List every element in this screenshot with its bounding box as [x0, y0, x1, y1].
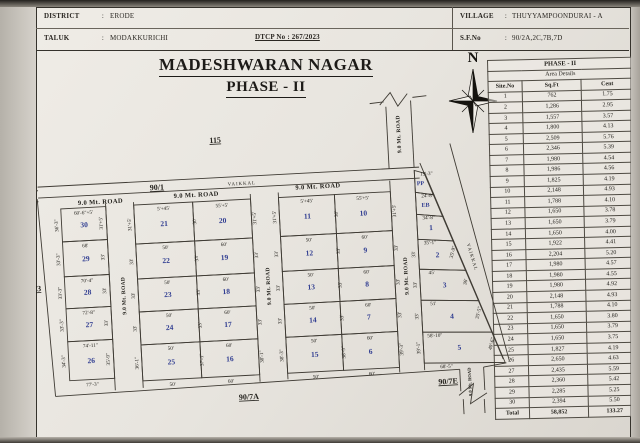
plot-4-number: 4 — [450, 311, 454, 320]
north-road-label: 9.0 Mt. ROAD — [395, 115, 403, 153]
plot-4-left-dim: 33' — [414, 313, 420, 319]
plot-10-right-dim: 31'+5' — [391, 204, 398, 217]
plot-16-top-dim: 60' — [226, 343, 232, 349]
plot-23-top-dim: 50' — [164, 280, 170, 286]
survey-tick — [26, 191, 39, 203]
plot-11-top-dim: 5'+45' — [300, 198, 313, 205]
header: DISTRICT : ERODE TALUK : MODAKKURICHI DT… — [36, 7, 629, 51]
plot-29-left-dim: 33'-3" — [56, 253, 63, 266]
sfno-value: 90/2A,2C,7B,7D — [512, 34, 562, 42]
south-road-line — [460, 369, 461, 391]
plot-EB-number: EB — [421, 203, 429, 209]
village-label: VILLAGE — [460, 12, 500, 20]
north-road-line — [386, 107, 389, 169]
plot-10-top-dim: 55'+5' — [356, 195, 369, 202]
parcel-90-7a-label: 90/7A — [239, 392, 260, 402]
plot-21-left-dim: 31'+5' — [127, 218, 134, 231]
plot-16-number: 16 — [226, 354, 234, 363]
plot-18-right-dim: 33' — [256, 286, 262, 292]
plot-5-number: 5 — [457, 343, 461, 352]
plot-26-bottom-dim: 77'-3" — [86, 382, 99, 389]
layout-title: MADESHWARAN NAGAR PHASE - II — [146, 55, 386, 98]
plot-18-number: 18 — [222, 287, 230, 296]
plot-27-left-dim: 33'-3" — [59, 319, 66, 332]
survey-tick — [25, 180, 38, 192]
parcel-115-label: 115 — [209, 135, 221, 145]
plot-8-right-dim: 33' — [395, 279, 401, 285]
west-boundary-line — [37, 199, 55, 397]
plot-6-bottom-dim: 60' — [369, 371, 375, 377]
plot-2-number: 2 — [435, 250, 439, 259]
plot-30-left-dim: 36'-3" — [54, 219, 61, 232]
plot-19-top-dim: 60' — [221, 242, 227, 248]
plot-29-right-dim: 33' — [100, 254, 106, 260]
plot-16-bottom-dim: 60' — [228, 379, 234, 385]
road-break-icon — [458, 383, 487, 404]
colon: : — [96, 12, 110, 20]
plot-5-right-dim: 40'-6" — [488, 337, 497, 351]
plot-20-right-dim: 31'+5' — [252, 212, 259, 225]
divider-dim: 33' — [339, 315, 345, 321]
plot-14-top-dim: 50' — [309, 305, 315, 311]
village-row: VILLAGE : THUYYAMPOONDURAI - A — [460, 12, 603, 20]
plot-30-right-dim: 31'+5' — [98, 217, 105, 230]
plot-5-bottom-dim: 68'-5" — [440, 364, 453, 371]
plot-3-top-dim: 45' — [428, 270, 434, 276]
plot-24-top-dim: 50' — [166, 313, 172, 319]
village-value: THUYYAMPOONDURAI - A — [512, 12, 603, 20]
colon: : — [500, 12, 512, 20]
plot-7-top-dim: 60' — [365, 302, 371, 308]
parcel-90-3-label: 90/3 — [27, 284, 42, 294]
south-road-line — [463, 399, 464, 414]
plot-25-top-dim: 50' — [168, 346, 174, 352]
plot-10-number: 10 — [359, 208, 367, 217]
header-divider-horizontal — [36, 28, 629, 29]
plot-15-number: 15 — [311, 350, 319, 359]
col-site-no: Site.No — [488, 81, 522, 92]
plot-2-right-dim: 35'-9" — [449, 245, 458, 259]
plot-11-left-dim: 31'+5' — [272, 211, 279, 224]
plot-29-number: 29 — [82, 254, 90, 263]
sfno-row: S.F.No : 90/2A,2C,7B,7D — [460, 34, 562, 42]
plot-22-top-dim: 50' — [162, 245, 168, 251]
plot-11-number: 11 — [304, 211, 312, 220]
plot-9-right-dim: 33' — [394, 245, 400, 251]
parcel-90-7e-label: 90/7E — [438, 376, 458, 386]
divider-dim: 33' — [337, 282, 343, 288]
plot-EB-top-dim: 24'-8" — [421, 193, 434, 200]
main-road-label: 9.0 Mt. ROAD — [78, 198, 124, 207]
south-road-line — [484, 367, 485, 390]
plot-13-top-dim: 50' — [307, 272, 313, 278]
plot-PP-number: PP — [417, 181, 425, 187]
plot-25-bottom-dim: 50' — [169, 382, 175, 388]
vaikkal-label-diagonal: VAIKKAL — [465, 243, 478, 271]
divider-dim: 30' — [192, 218, 198, 224]
divider-dim: 33' — [336, 248, 342, 254]
plot-30-top-dim: 60'-6"+5' — [74, 210, 93, 217]
plot-3-left-dim: 33' — [413, 282, 419, 288]
plot-25-left-dim: 36'-1" — [134, 357, 141, 370]
plot-22-left-dim: 33' — [129, 258, 135, 264]
plot-4-right-dim: 35'-5" — [475, 306, 484, 320]
plot-15-left-dim: 38'-3" — [279, 349, 286, 362]
divider-dim: 38'-9" — [341, 346, 348, 359]
main-road-label: 9.0 Mt. ROAD — [173, 191, 219, 200]
plot-8-top-dim: 60' — [363, 269, 369, 275]
divider-dim: 30' — [334, 211, 340, 217]
plot-23-left-dim: 33' — [131, 292, 137, 298]
plot-5-left-dim: 39'-1" — [416, 341, 423, 354]
parcel-90-1-label: 90/1 — [150, 183, 165, 193]
district-label: DISTRICT — [44, 12, 96, 20]
south-boundary-line — [483, 363, 506, 367]
taluk-row: TALUK : MODAKKURICHI — [44, 34, 168, 42]
divider-dim: 33' — [196, 289, 202, 295]
total-cent: 133.27 — [589, 405, 640, 417]
site-plan: 115 90/1 VAIKKAL 9.0 Mt. ROAD 9.0 Mt. RO… — [0, 95, 520, 443]
plot-19-right-dim: 33' — [254, 252, 260, 258]
plot-15-bottom-dim: 50' — [313, 374, 319, 380]
total-sqft: 58,852 — [529, 406, 589, 418]
plot-26-left-dim: 34'-3" — [61, 355, 68, 368]
taluk-value: MODAKKURICHI — [110, 34, 168, 42]
plot-27-number: 27 — [85, 320, 93, 329]
plot-21-top-dim: 5'+45' — [157, 206, 170, 213]
plot-PP-top-dim: 19'-3" — [420, 171, 433, 178]
divider-dim: 33' — [197, 322, 203, 328]
district-value: ERODE — [110, 12, 134, 20]
dtcp-number: DTCP No : 267/2023 — [255, 33, 320, 41]
scan-shadow-top — [0, 0, 640, 7]
plot-3-right-dim: 36' — [462, 278, 469, 285]
plot-12-left-dim: 33' — [274, 251, 280, 257]
plot-2-left-dim: 33' — [411, 251, 417, 257]
plot-29-top-dim: 68' — [82, 243, 88, 249]
south-road-line — [484, 399, 485, 413]
plot-7-right-dim: 33' — [397, 312, 403, 318]
plot-9-number: 9 — [363, 245, 367, 254]
plot-9-top-dim: 60' — [361, 234, 367, 240]
plot-13-left-dim: 33' — [276, 285, 282, 291]
plot-15-top-dim: 50' — [311, 338, 317, 344]
plot-28-right-dim: 33' — [102, 287, 108, 293]
scanned-plan-page: DISTRICT : ERODE TALUK : MODAKKURICHI DT… — [0, 0, 640, 443]
colon: : — [96, 34, 110, 42]
plot-18-top-dim: 60' — [222, 277, 228, 283]
main-road-label: 9.0 Mt. ROAD — [295, 182, 341, 191]
plot-6-number: 6 — [369, 347, 373, 356]
district-row: DISTRICT : ERODE — [44, 12, 134, 20]
sfno-label: S.F.No — [460, 34, 500, 42]
plot-17-right-dim: 33' — [257, 319, 263, 325]
plot-6-top-dim: 60' — [367, 335, 373, 341]
taluk-label: TALUK — [44, 34, 96, 42]
cross-road-label: 9.0 Mt. ROAD — [403, 257, 411, 295]
plot-26-number: 26 — [87, 356, 95, 365]
cross-road-label: 9.0 Mt. ROAD — [120, 277, 128, 315]
plot-1-top-dim: 34'-8" — [422, 215, 435, 222]
plot-6-right-dim: 39'-3" — [399, 343, 406, 356]
plot-3-number: 3 — [442, 280, 446, 289]
plot-28-number: 28 — [84, 287, 92, 296]
divider-dim: 37'-1" — [199, 353, 206, 366]
south-road-label: 9.0 Mt. ROAD — [467, 367, 474, 396]
plot-5-top-dim: 58'-10" — [427, 333, 442, 340]
plot-14-number: 14 — [309, 315, 317, 324]
colon: : — [500, 34, 512, 42]
plot-27-right-dim: 33' — [104, 320, 110, 326]
plot-12-number: 12 — [305, 248, 313, 257]
plot-16-right-dim: 38'-1" — [259, 350, 266, 363]
plot-2-top-dim: 35'-1" — [424, 240, 437, 247]
layout-title-line1: MADESHWARAN NAGAR — [159, 55, 373, 77]
plot-26-right-dim: 35'-9" — [105, 353, 112, 366]
plot-27-top-dim: 72'-8" — [82, 310, 95, 317]
north-road-cap — [412, 96, 426, 98]
plot-4-top-dim: 51' — [430, 301, 436, 307]
plot-25-number: 25 — [167, 357, 175, 366]
plot-20-number: 20 — [219, 216, 227, 225]
plot-20-top-dim: 55'+5' — [215, 203, 228, 210]
plot-26-top-dim: 74'-11" — [83, 343, 98, 350]
plot-17-number: 17 — [224, 320, 232, 329]
plot-7-number: 7 — [367, 312, 371, 321]
plot-17-top-dim: 60' — [224, 310, 230, 316]
plot-21-number: 21 — [160, 219, 168, 228]
plot-19-number: 19 — [221, 253, 229, 262]
divider-dim: 33' — [194, 255, 200, 261]
plot-28-top-dim: 70'-4" — [81, 278, 94, 285]
plot-28-left-dim: 33'-3" — [57, 287, 64, 300]
plot-12-top-dim: 50' — [306, 237, 312, 243]
plot-24-left-dim: 33' — [132, 325, 138, 331]
plot-23-number: 23 — [164, 290, 172, 299]
plot-24-number: 24 — [166, 323, 174, 332]
plot-8-number: 8 — [365, 279, 369, 288]
plot-30-number: 30 — [80, 220, 88, 229]
plot-13-number: 13 — [307, 282, 315, 291]
plot-14-left-dim: 33' — [277, 318, 283, 324]
north-road-line — [411, 100, 415, 167]
plot-1-number: 1 — [429, 223, 433, 232]
cross-road-label: 9.0 Mt. ROAD — [265, 267, 273, 305]
plot-22-number: 22 — [162, 256, 170, 265]
